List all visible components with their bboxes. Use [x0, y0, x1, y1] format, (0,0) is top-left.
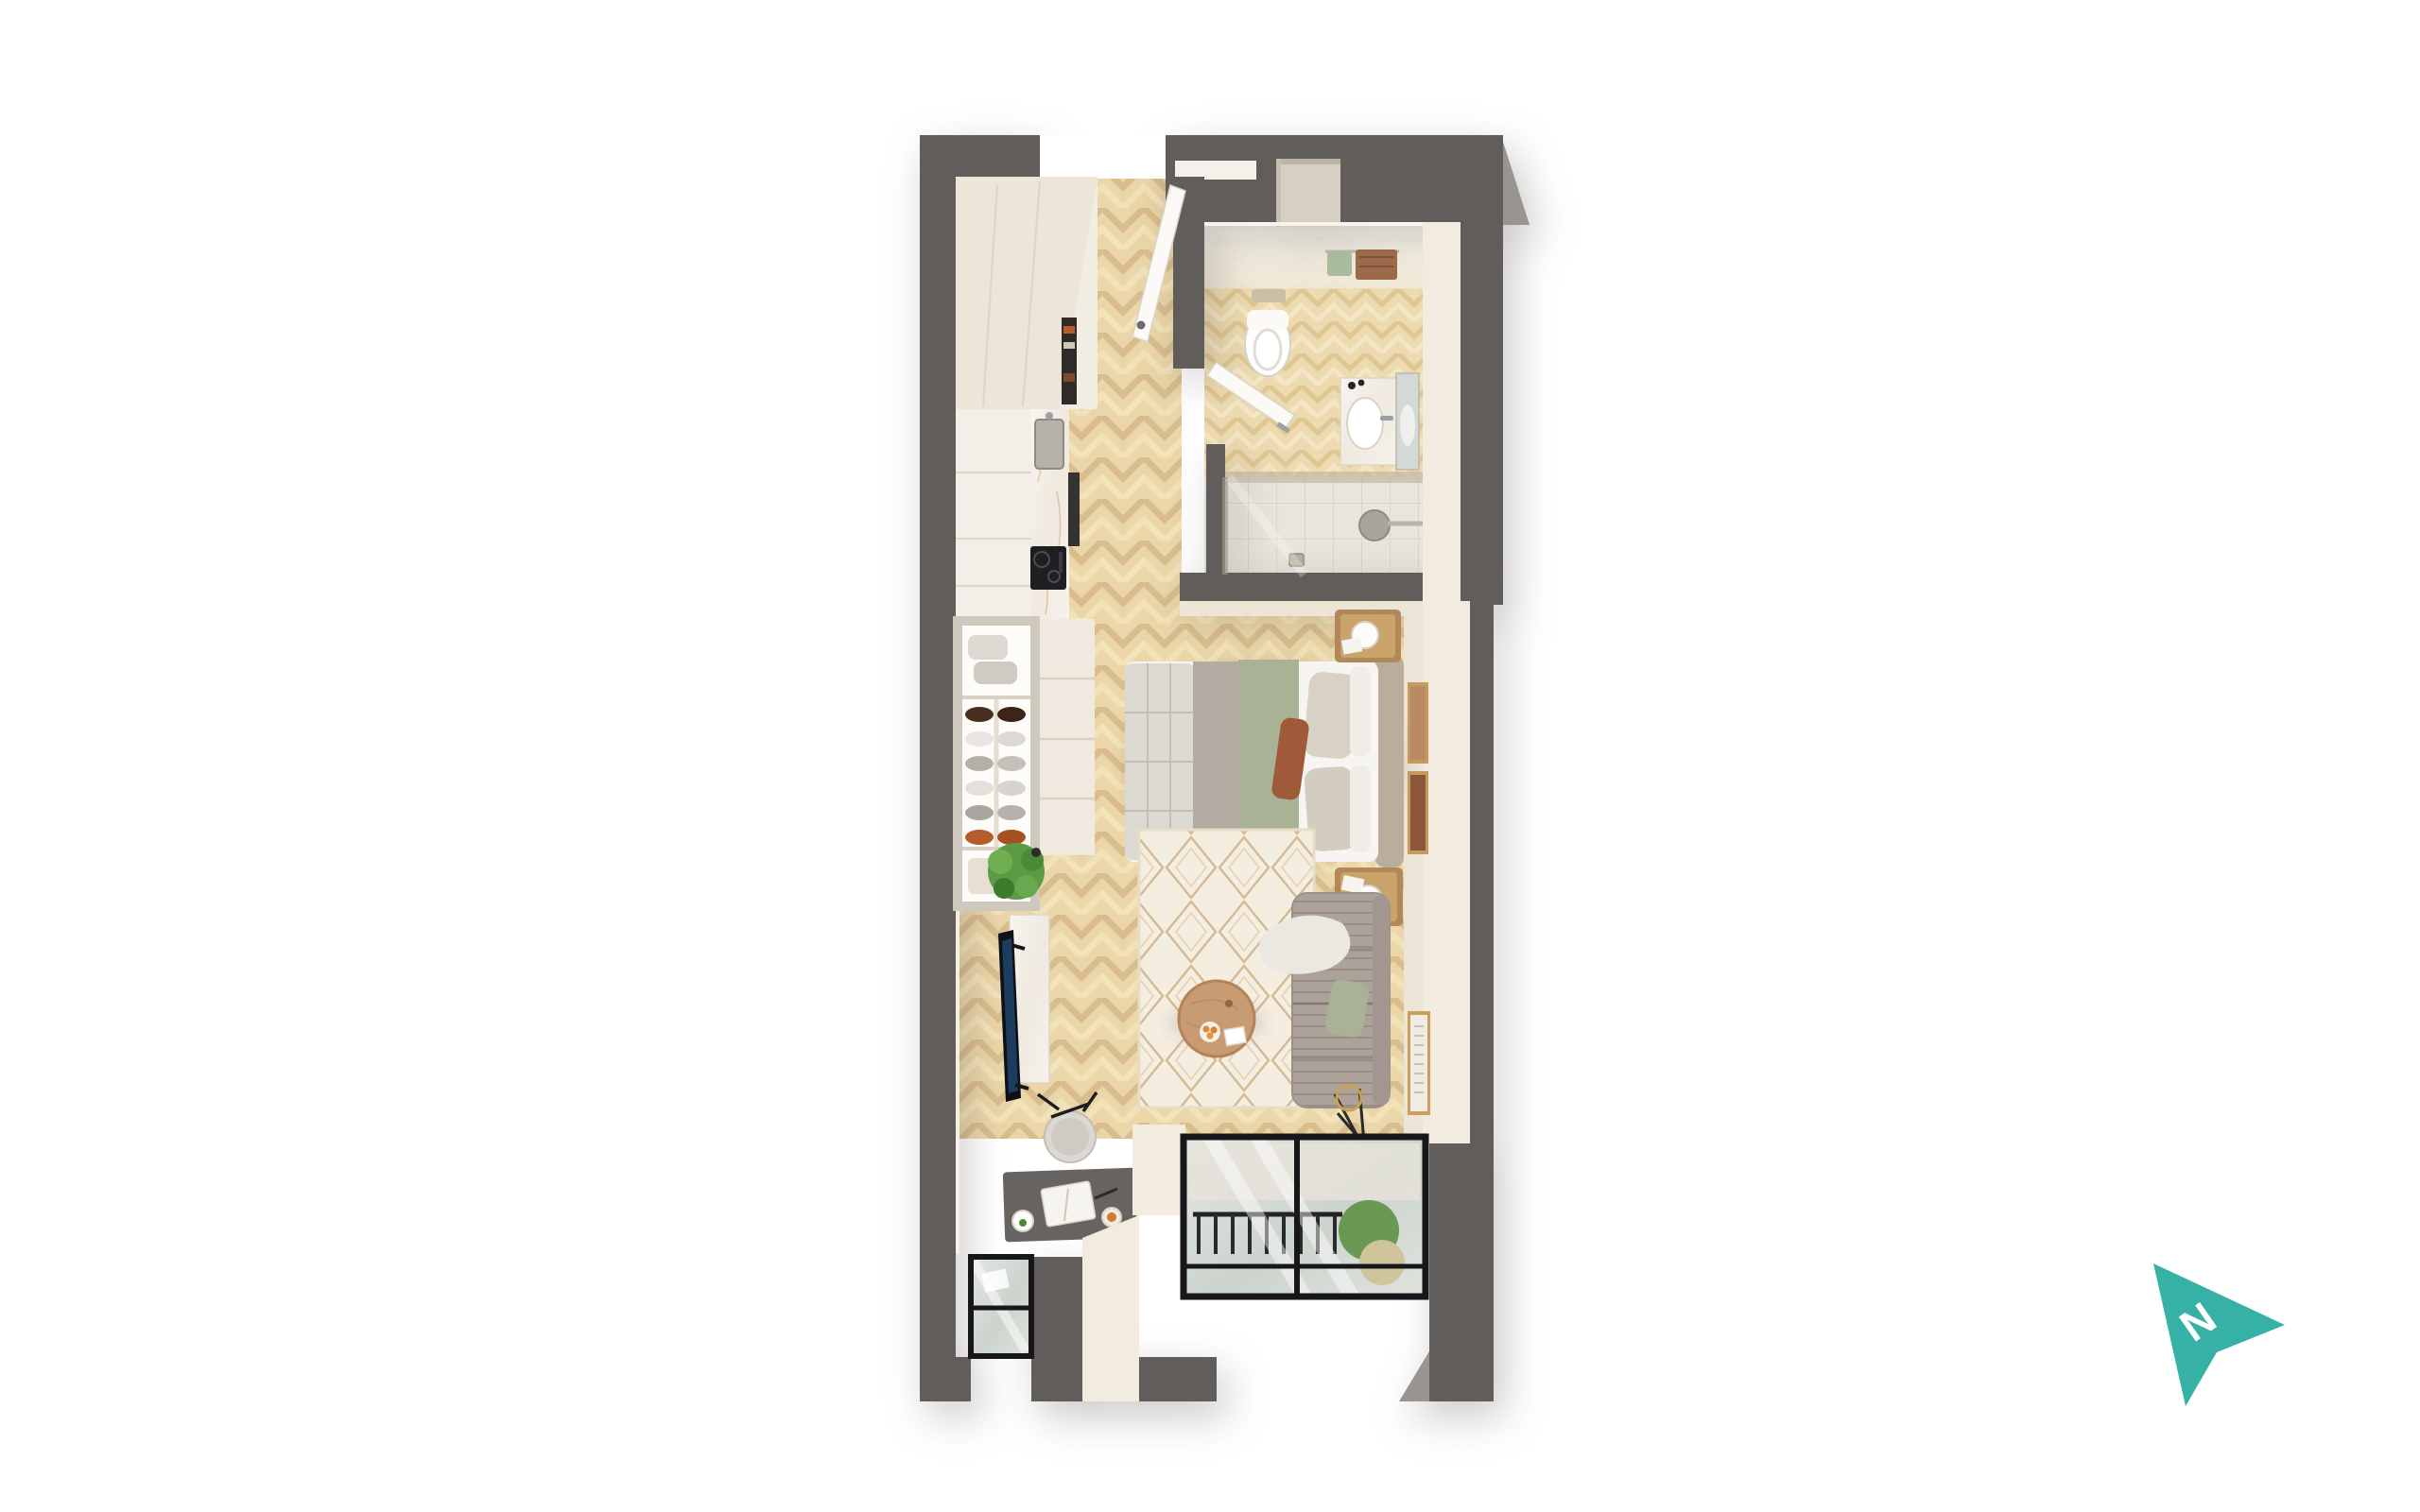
door-handle — [1137, 321, 1146, 330]
floor-plan-render: N — [0, 0, 2420, 1512]
kitchen — [956, 409, 1080, 619]
vanity-faucet — [1380, 416, 1393, 421]
sofa-back — [1373, 896, 1390, 1105]
drawer-dresser — [1040, 619, 1095, 855]
round-coffee-table — [1179, 981, 1254, 1057]
right-wall-lower — [1470, 601, 1494, 1143]
towel-rail — [1325, 249, 1399, 280]
shower-head — [1359, 510, 1390, 541]
kitchen-sink — [1035, 420, 1063, 469]
small-window — [971, 1257, 1031, 1356]
towel-brown — [1356, 249, 1397, 280]
lower-wall-face — [1082, 1215, 1139, 1401]
bathroom-bottom-wall — [1180, 573, 1461, 601]
nightstand-top — [1335, 610, 1401, 662]
bottom-left-foot — [920, 1357, 971, 1401]
open-notebook — [1041, 1181, 1096, 1227]
entry-opening — [1040, 135, 1166, 179]
sliding-glass-window — [1184, 1137, 1426, 1297]
media-unit — [998, 915, 1049, 1102]
floor-plan-canvas: N — [0, 0, 2420, 1512]
vanity — [1340, 373, 1419, 470]
balcony-pouf — [1359, 1240, 1405, 1285]
wall-niche — [1276, 159, 1340, 227]
flush-plate — [1252, 289, 1286, 302]
utensil-panel — [1068, 472, 1080, 546]
fruit-bowl — [1200, 1022, 1220, 1042]
headboard — [1375, 656, 1404, 868]
potted-plant — [988, 843, 1045, 900]
hall-closet — [956, 177, 1098, 409]
kitchen-faucet — [1046, 412, 1053, 420]
photo-card — [1224, 1026, 1247, 1045]
left-wall — [920, 135, 956, 1401]
towel-green — [1327, 251, 1352, 276]
top-wall-left — [920, 135, 1040, 177]
window-ledge-left — [1132, 1125, 1185, 1215]
shower-glass-screen — [1225, 472, 1423, 483]
living-wall-art — [1408, 1011, 1430, 1115]
bottom-right-pier — [1429, 1137, 1494, 1401]
induction-hob — [1030, 546, 1066, 590]
kitchen-cabinets — [956, 409, 1031, 619]
vanity-sink — [1347, 398, 1383, 449]
right-wall-upper — [1461, 135, 1503, 605]
